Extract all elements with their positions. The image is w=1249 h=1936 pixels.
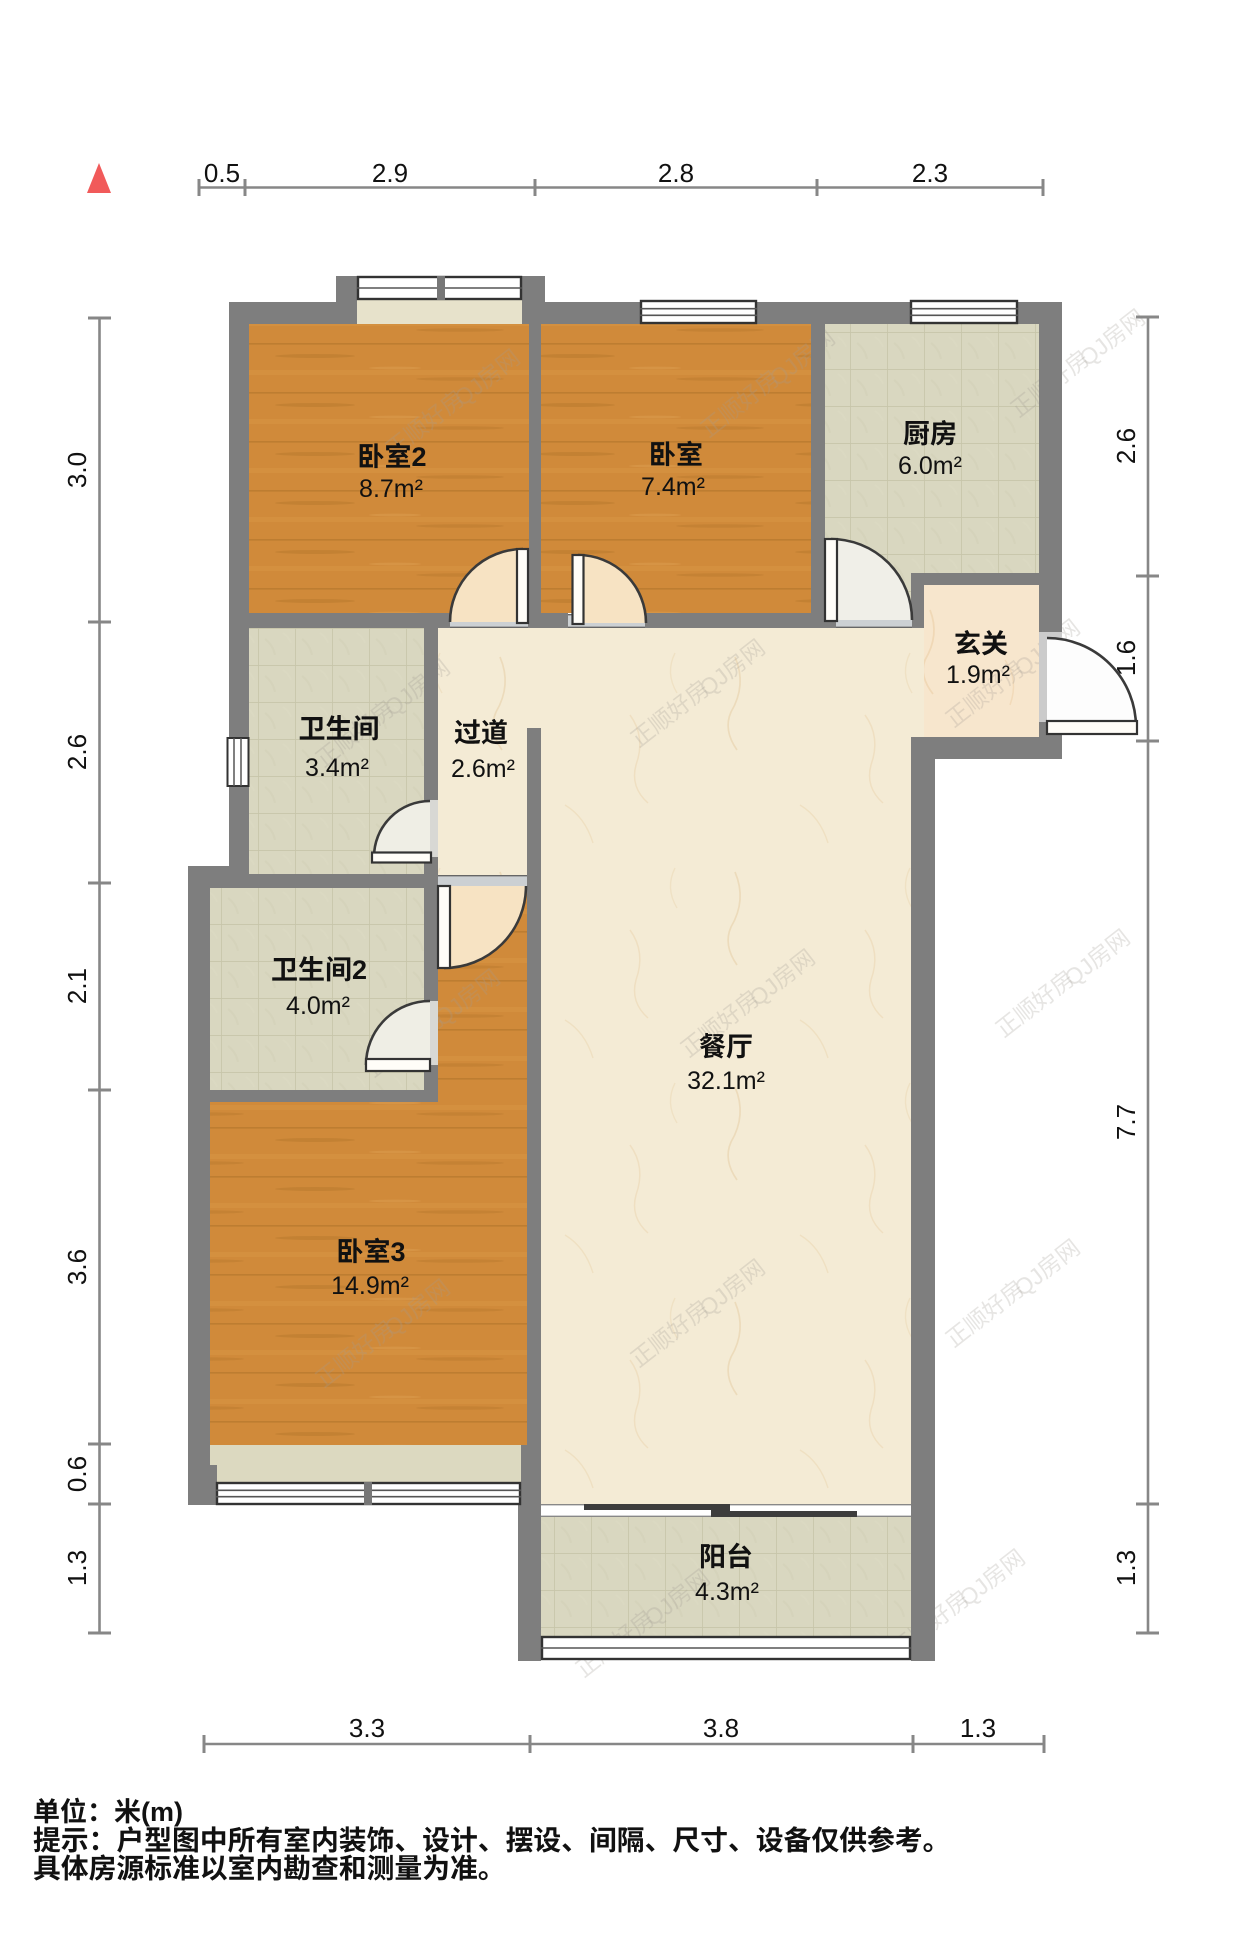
svg-text:3.0: 3.0 [62, 452, 92, 488]
svg-text:3: 3 [391, 1237, 406, 1267]
svg-text:3.4m²: 3.4m² [305, 754, 369, 782]
svg-text:1.3: 1.3 [960, 1713, 996, 1743]
svg-text:2.9: 2.9 [372, 158, 408, 188]
svg-text:1.9m²: 1.9m² [946, 661, 1010, 689]
svg-text:4.0m²: 4.0m² [286, 992, 350, 1020]
svg-text:2: 2 [352, 955, 367, 985]
svg-text:2.3: 2.3 [912, 158, 948, 188]
svg-text:2.6m²: 2.6m² [451, 755, 515, 783]
svg-text:1.3: 1.3 [1111, 1550, 1141, 1586]
svg-text:6.0m²: 6.0m² [898, 452, 962, 480]
svg-text:2: 2 [412, 442, 427, 472]
svg-text:2.6: 2.6 [1111, 428, 1141, 464]
svg-text:2.1: 2.1 [62, 968, 92, 1004]
svg-text:(m): (m) [141, 1797, 183, 1827]
svg-text:0.6: 0.6 [62, 1456, 92, 1492]
svg-text:2.6: 2.6 [62, 734, 92, 770]
svg-text:14.9m²: 14.9m² [331, 1272, 409, 1300]
svg-text:2.8: 2.8 [658, 158, 694, 188]
svg-text:0.5: 0.5 [204, 158, 240, 188]
svg-text:1.6: 1.6 [1111, 640, 1141, 676]
svg-text:1.3: 1.3 [62, 1550, 92, 1586]
svg-text:3.6: 3.6 [62, 1249, 92, 1285]
svg-text:4.3m²: 4.3m² [695, 1578, 759, 1606]
svg-text:7.7: 7.7 [1111, 1104, 1141, 1140]
svg-text:7.4m²: 7.4m² [641, 473, 705, 501]
svg-text:8.7m²: 8.7m² [359, 475, 423, 503]
svg-text:3.3: 3.3 [349, 1713, 385, 1743]
svg-text:32.1m²: 32.1m² [687, 1067, 765, 1095]
svg-text:3.8: 3.8 [703, 1713, 739, 1743]
